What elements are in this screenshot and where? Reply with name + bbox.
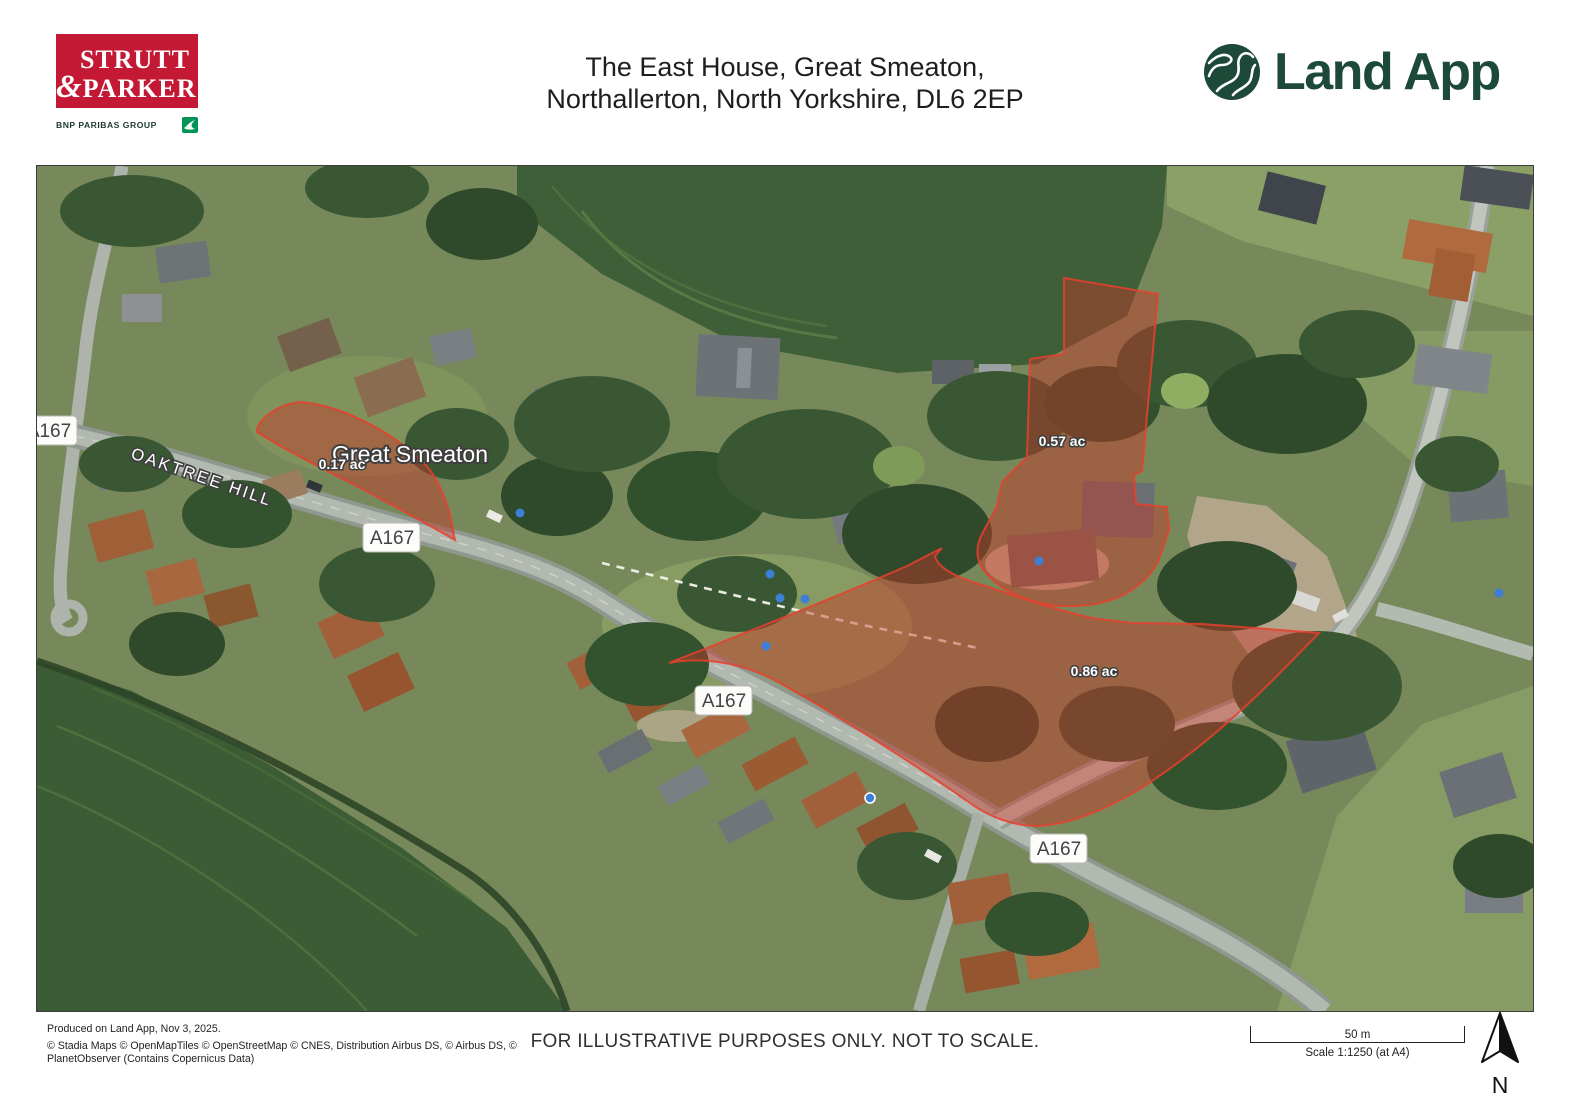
- north-arrow-icon: [1477, 1010, 1523, 1066]
- landapp-contour-icon: [1203, 43, 1261, 101]
- title-line-1: The East House, Great Smeaton,: [546, 52, 1023, 84]
- map-frame: Great Smeaton OAKTREE HILL 0.17 ac 0.57 …: [36, 165, 1534, 1012]
- attribution-line-1: © Stadia Maps © OpenMapTiles © OpenStree…: [47, 1040, 517, 1053]
- scale-ratio-label: Scale 1:1250 (at A4): [1250, 1047, 1465, 1059]
- road-badge-a167-1: A167: [37, 416, 77, 445]
- map-export-page: STRUTT &PARKER BNP PARIBAS GROUP The Eas…: [0, 0, 1570, 1110]
- page-title: The East House, Great Smeaton, Northalle…: [546, 52, 1023, 116]
- strutt-parker-logo: STRUTT &PARKER BNP PARIBAS GROUP: [56, 34, 198, 133]
- bnp-paribas-icon: [182, 117, 198, 133]
- brand-ampersand: &: [56, 69, 83, 105]
- road-badge-a167-2: A167: [363, 523, 420, 552]
- north-label: N: [1474, 1072, 1526, 1099]
- svg-text:A167: A167: [37, 421, 71, 442]
- area-label-parcel-2: 0.57 ac: [1039, 433, 1086, 449]
- brand-name-bottom: &PARKER: [56, 72, 190, 102]
- area-label-parcel-3: 0.86 ac: [1071, 663, 1118, 679]
- svg-text:A167: A167: [1037, 839, 1081, 860]
- svg-text:A167: A167: [370, 528, 414, 549]
- attribution-line-2: PlanetObserver (Contains Copernicus Data…: [47, 1053, 517, 1066]
- road-badge-a167-4: A167: [1030, 834, 1087, 863]
- landapp-wordmark: Land App: [1274, 42, 1500, 102]
- disclaimer-text: FOR ILLUSTRATIVE PURPOSES ONLY. NOT TO S…: [531, 1031, 1040, 1053]
- produced-on-label: Produced on Land App, Nov 3, 2025.: [47, 1023, 517, 1036]
- scale-bar: 50 m Scale 1:1250 (at A4): [1250, 1026, 1465, 1059]
- bnp-paribas-group-label: BNP PARIBAS GROUP: [56, 120, 157, 130]
- landapp-logo: Land App: [1203, 42, 1500, 102]
- title-line-2: Northallerton, North Yorkshire, DL6 2EP: [546, 84, 1023, 116]
- north-arrow: N: [1474, 1010, 1526, 1099]
- scale-bar-label: 50 m: [1251, 1029, 1464, 1041]
- satellite-map: Great Smeaton OAKTREE HILL 0.17 ac 0.57 …: [37, 166, 1533, 1011]
- area-label-parcel-1: 0.17 ac: [319, 456, 366, 472]
- road-badge-a167-3: A167: [695, 686, 752, 715]
- strutt-parker-wordmark: STRUTT &PARKER: [56, 34, 198, 108]
- svg-text:A167: A167: [702, 691, 746, 712]
- map-attribution: Produced on Land App, Nov 3, 2025. © Sta…: [47, 1023, 517, 1066]
